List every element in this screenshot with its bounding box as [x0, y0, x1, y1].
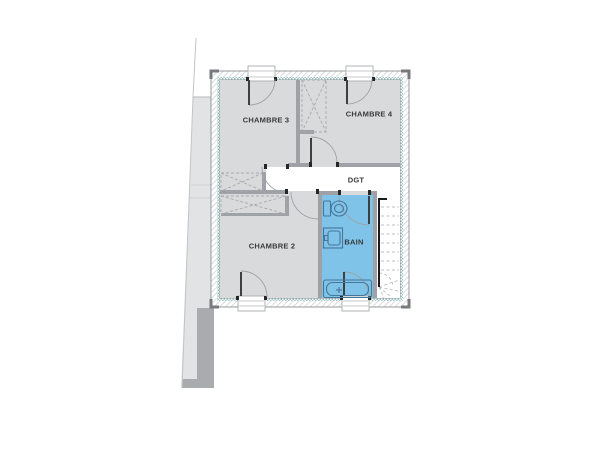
floor-plan-canvas: CHAMBRE 3 CHAMBRE 4 DGT CHAMBRE 2 BAIN — [0, 0, 600, 450]
floor-plan-drawing — [0, 0, 600, 450]
window-chambre3 — [246, 66, 277, 81]
bathroom-left-wall — [318, 191, 322, 298]
window-chambre4 — [344, 66, 375, 81]
window-bain — [340, 296, 371, 311]
room-label-chambre-3: CHAMBRE 3 — [243, 116, 289, 125]
room-label-chambre-4: CHAMBRE 4 — [346, 110, 392, 119]
room-label-dgt: DGT — [348, 176, 364, 185]
room-label-bain: BAIN — [344, 238, 363, 247]
window-chambre2 — [236, 296, 267, 311]
room-label-chambre-2: CHAMBRE 2 — [249, 242, 295, 251]
bathroom-right-wall — [373, 191, 377, 298]
adjacent-building-area — [181, 38, 214, 388]
hallway-floor — [266, 167, 400, 191]
